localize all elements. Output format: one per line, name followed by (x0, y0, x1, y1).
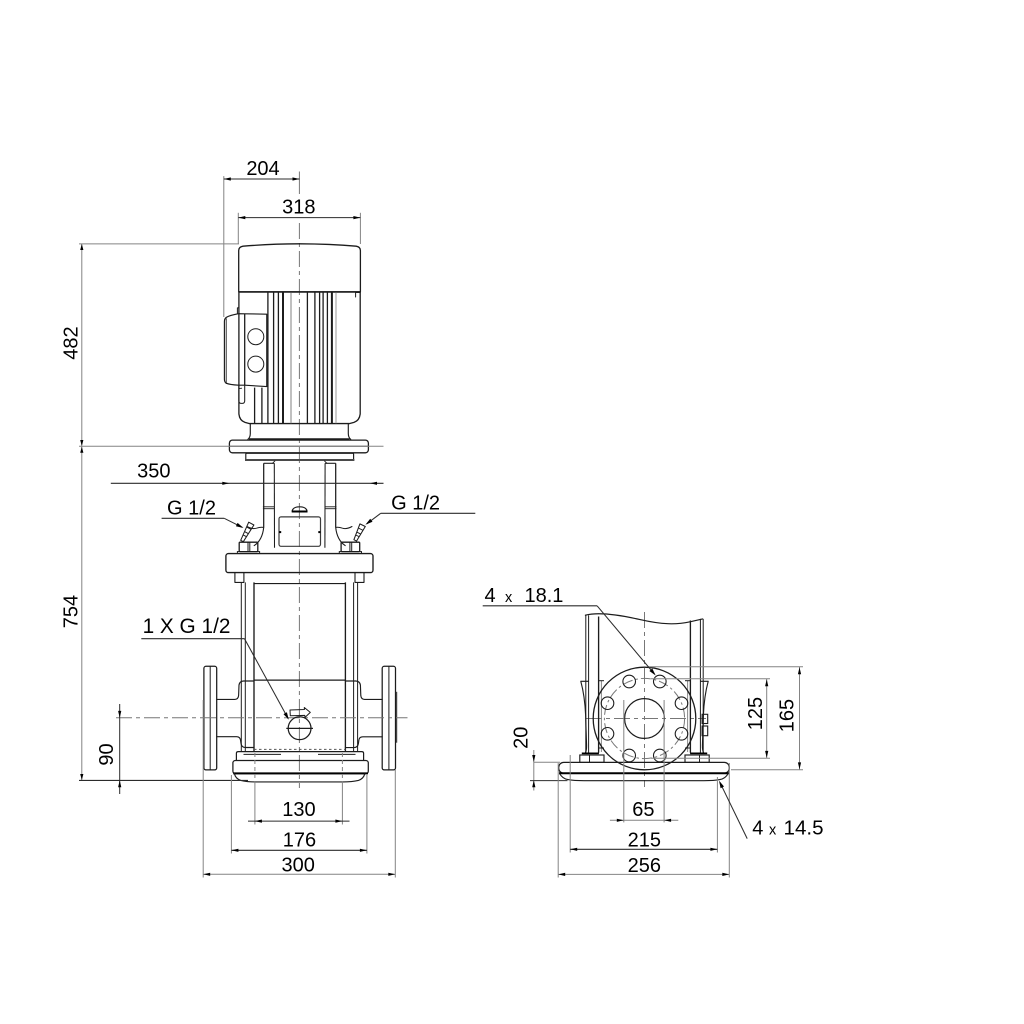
svg-text:204: 204 (246, 158, 279, 180)
svg-text:300: 300 (282, 854, 315, 876)
svg-text:14.5: 14.5 (784, 817, 824, 840)
svg-text:482: 482 (61, 326, 83, 359)
svg-text:G 1/2: G 1/2 (167, 497, 216, 519)
svg-text:130: 130 (282, 799, 315, 821)
svg-text:350: 350 (137, 461, 170, 483)
svg-text:176: 176 (283, 829, 316, 851)
svg-text:20: 20 (511, 727, 533, 749)
svg-text:x: x (769, 823, 777, 839)
svg-text:754: 754 (61, 595, 83, 628)
svg-text:1 X G 1/2: 1 X G 1/2 (143, 615, 231, 638)
svg-text:125: 125 (745, 697, 767, 730)
svg-text:90: 90 (96, 743, 118, 765)
svg-text:165: 165 (777, 699, 799, 732)
svg-text:4: 4 (485, 585, 496, 607)
svg-text:x: x (505, 590, 513, 606)
svg-text:65: 65 (632, 799, 654, 821)
svg-text:256: 256 (628, 855, 661, 877)
svg-text:215: 215 (628, 829, 661, 851)
svg-text:18.1: 18.1 (525, 585, 564, 607)
svg-text:G 1/2: G 1/2 (391, 492, 440, 514)
svg-text:4: 4 (752, 818, 763, 840)
svg-text:318: 318 (282, 197, 315, 219)
